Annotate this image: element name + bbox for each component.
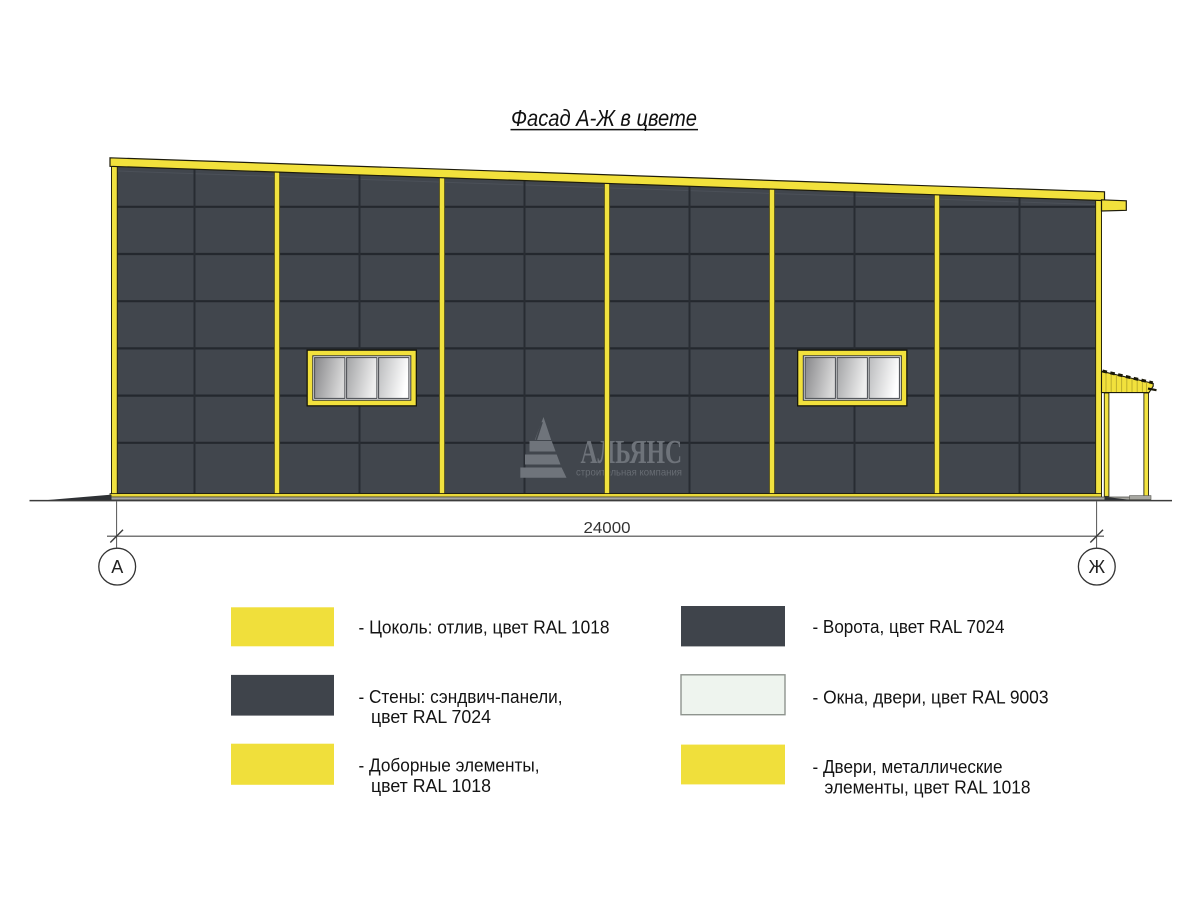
svg-text:Ж: Ж bbox=[1088, 557, 1105, 577]
svg-text:элементы, цвет RAL 1018: элементы, цвет RAL 1018 bbox=[825, 778, 1031, 798]
svg-text:строительная компания: строительная компания bbox=[576, 468, 682, 479]
svg-text:- Доборные элементы,: - Доборные элементы, bbox=[359, 756, 540, 776]
svg-text:Фасад А-Ж в цвете: Фасад А-Ж в цвете bbox=[511, 105, 697, 131]
svg-text:- Цоколь: отлив, цвет RAL 1018: - Цоколь: отлив, цвет RAL 1018 bbox=[359, 617, 610, 637]
svg-text:- Ворота, цвет RAL 7024: - Ворота, цвет RAL 7024 bbox=[813, 617, 1005, 637]
svg-text:цвет RAL 7024: цвет RAL 7024 bbox=[371, 707, 491, 727]
svg-text:- Окна, двери, цвет RAL 9003: - Окна, двери, цвет RAL 9003 bbox=[813, 688, 1049, 708]
svg-text:24000: 24000 bbox=[584, 520, 631, 537]
svg-text:А: А bbox=[111, 557, 123, 577]
svg-text:- Двери, металлические: - Двери, металлические bbox=[813, 757, 1003, 777]
svg-text:АЛЬЯНС: АЛЬЯНС bbox=[581, 434, 683, 471]
svg-text:цвет RAL 1018: цвет RAL 1018 bbox=[371, 776, 491, 796]
svg-text:- Стены: сэндвич-панели,: - Стены: сэндвич-панели, bbox=[359, 687, 563, 707]
